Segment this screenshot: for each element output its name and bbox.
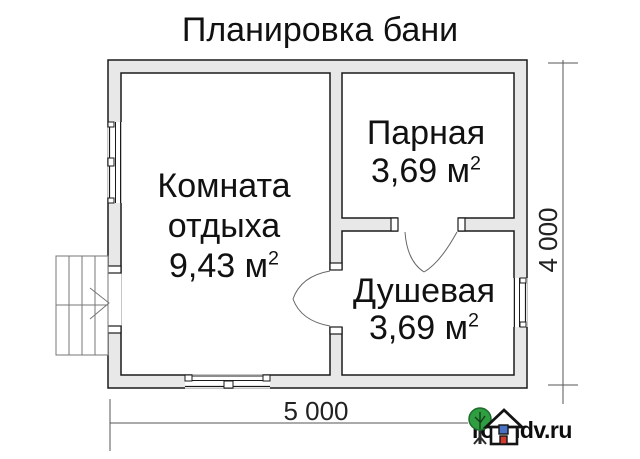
house-window [499,425,508,434]
dimension-width-label: 5 000 [216,396,416,427]
room-label-rest: Комната отдыха 9,43 м2 [134,166,314,286]
room-area: 3,69 м [369,309,468,347]
dimension-height-label: 4 000 [533,170,563,310]
watermark: rosndv.ru [468,404,640,456]
room-area-sup: 2 [268,248,279,270]
window-bottom [185,375,270,389]
page-title: Планировка бани [0,10,640,50]
window-right [514,278,528,327]
entry-door-opening [108,266,122,333]
house-door [500,436,507,444]
room-area-sup: 2 [468,310,479,332]
floor-plan-page: Планировка бани Комната отдыха 9,43 м2 П… [0,0,640,459]
room-area-sup: 2 [470,153,481,175]
window-left [108,122,122,203]
room-name: Парная [367,114,485,152]
room-area: 9,43 м [169,247,268,285]
room-label-steam: Парная 3,69 м2 [346,114,506,190]
house-icon [486,410,522,444]
room-name: Комната отдыха [157,167,290,245]
stairs [56,256,109,355]
room-name: Душевая [353,272,495,310]
watermark-logo [468,404,524,450]
room-label-shower: Душевая 3,69 м2 [344,273,504,347]
room-area: 3,69 м [371,152,470,190]
